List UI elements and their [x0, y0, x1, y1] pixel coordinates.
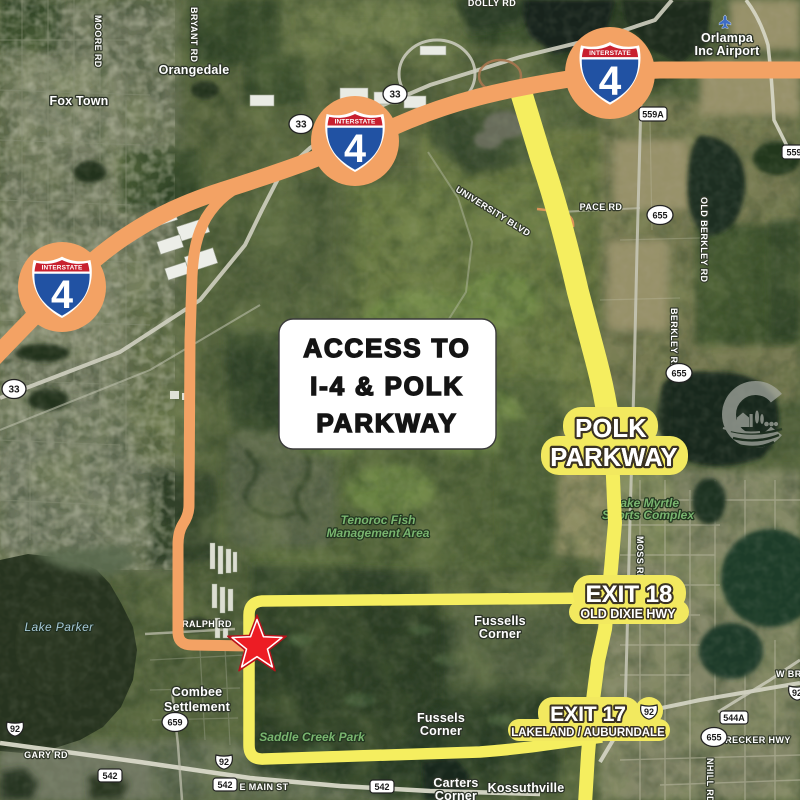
- svg-text:INTERSTATE: INTERSTATE: [335, 119, 376, 126]
- svg-text:BERKLEY RD: BERKLEY RD: [669, 308, 679, 370]
- svg-text:W BRID: W BRID: [776, 669, 800, 679]
- svg-text:Kossuthville: Kossuthville: [488, 781, 565, 795]
- svg-text:92: 92: [644, 707, 654, 717]
- svg-text:542: 542: [217, 780, 232, 790]
- svg-text:LAKELAND / AUBURNDALE: LAKELAND / AUBURNDALE: [511, 727, 665, 739]
- svg-text:Orlampa: Orlampa: [701, 31, 754, 45]
- svg-text:Lake Parker: Lake Parker: [24, 620, 94, 634]
- svg-text:559: 559: [786, 148, 800, 158]
- svg-text:92: 92: [792, 688, 800, 698]
- svg-text:BRYANT RD: BRYANT RD: [189, 7, 199, 63]
- svg-text:Corner: Corner: [479, 627, 521, 641]
- svg-text:POLK: POLK: [575, 415, 647, 443]
- svg-text:Combee: Combee: [172, 685, 223, 699]
- svg-text:33: 33: [389, 90, 401, 101]
- svg-text:4: 4: [344, 127, 366, 171]
- svg-text:542: 542: [374, 782, 389, 792]
- svg-text:Orangedale: Orangedale: [159, 63, 230, 77]
- svg-text:OLD DIXIE HWY: OLD DIXIE HWY: [580, 607, 676, 621]
- svg-text:RECKER HWY: RECKER HWY: [725, 735, 791, 745]
- svg-text:655: 655: [706, 733, 721, 743]
- svg-text:INTERSTATE: INTERSTATE: [589, 50, 631, 57]
- svg-text:33: 33: [8, 385, 20, 396]
- svg-text:PARKWAY: PARKWAY: [550, 444, 678, 472]
- svg-text:Tenoroc Fish: Tenoroc Fish: [341, 513, 416, 527]
- svg-text:MOORE RD: MOORE RD: [93, 15, 103, 68]
- svg-text:542: 542: [102, 771, 117, 781]
- svg-text:Inc Airport: Inc Airport: [695, 44, 761, 58]
- svg-text:MOSS RD: MOSS RD: [635, 536, 645, 581]
- svg-text:92: 92: [219, 757, 229, 767]
- svg-text:Carters: Carters: [433, 776, 478, 790]
- svg-text:Fox Town: Fox Town: [50, 94, 109, 108]
- svg-text:92: 92: [10, 724, 20, 734]
- svg-text:EXIT 18: EXIT 18: [586, 581, 673, 608]
- svg-text:GARY RD: GARY RD: [24, 750, 68, 760]
- svg-text:EXIT 17: EXIT 17: [550, 703, 626, 726]
- svg-text:I-4 & POLK: I-4 & POLK: [310, 371, 464, 401]
- svg-text:Management Area: Management Area: [327, 526, 430, 540]
- svg-text:544A: 544A: [723, 713, 745, 723]
- svg-text:Fussells: Fussells: [474, 614, 526, 628]
- svg-text:DOLLY RD: DOLLY RD: [468, 0, 516, 8]
- svg-text:Corner: Corner: [420, 724, 462, 738]
- svg-text:NHILL RD: NHILL RD: [705, 758, 715, 800]
- svg-text:INTERSTATE: INTERSTATE: [42, 265, 83, 272]
- svg-text:4: 4: [599, 58, 622, 104]
- svg-text:Saddle Creek Park: Saddle Creek Park: [259, 730, 366, 744]
- svg-text:Fussels: Fussels: [417, 711, 465, 725]
- svg-text:659: 659: [167, 718, 182, 728]
- svg-text:PARKWAY: PARKWAY: [316, 408, 457, 438]
- svg-text:Corner: Corner: [435, 789, 477, 800]
- svg-text:33: 33: [295, 120, 307, 131]
- svg-text:559A: 559A: [642, 110, 664, 120]
- svg-text:655: 655: [671, 369, 686, 379]
- svg-text:E MAIN ST: E MAIN ST: [239, 782, 288, 792]
- svg-text:4: 4: [51, 273, 73, 317]
- svg-text:PACE RD: PACE RD: [580, 202, 623, 212]
- svg-text:RALPH RD: RALPH RD: [182, 619, 232, 629]
- svg-text:655: 655: [652, 211, 667, 221]
- svg-text:ACCESS TO: ACCESS TO: [303, 333, 470, 363]
- svg-text:OLD BERKLEY RD: OLD BERKLEY RD: [699, 197, 709, 283]
